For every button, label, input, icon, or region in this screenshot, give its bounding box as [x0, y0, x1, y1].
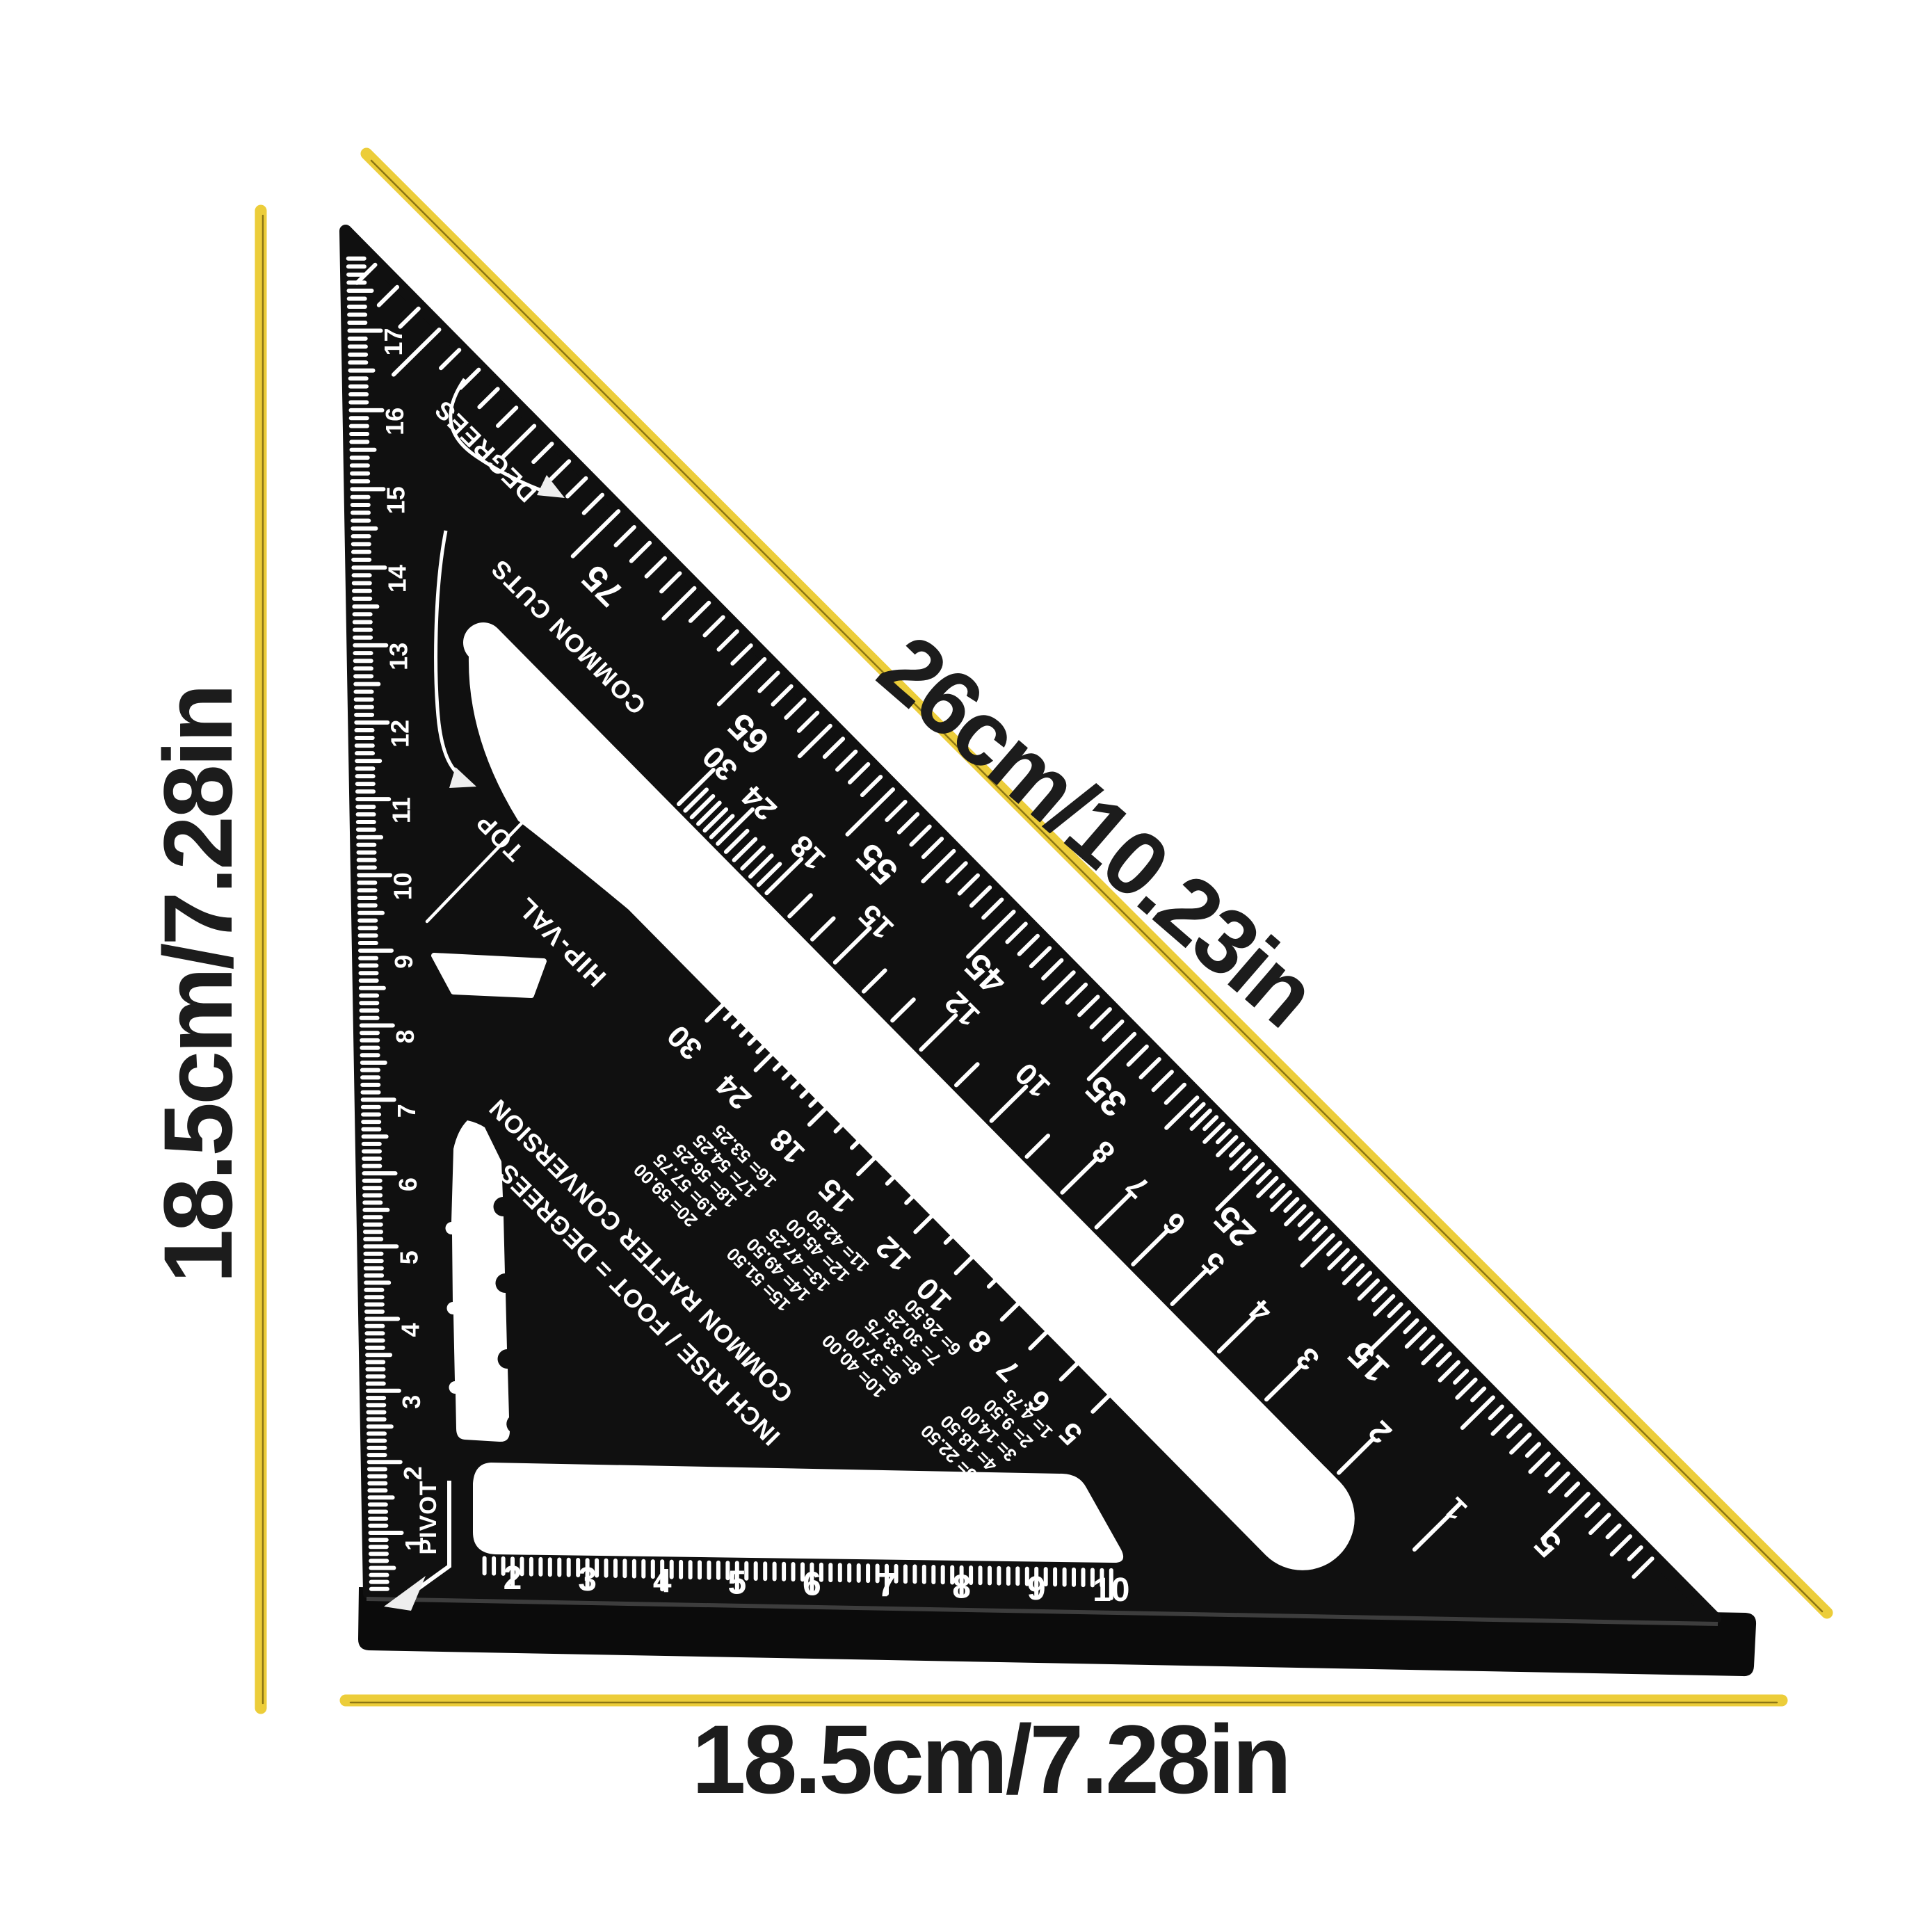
svg-text:9: 9 — [1027, 1570, 1046, 1607]
svg-text:7: 7 — [878, 1568, 896, 1604]
svg-text:4: 4 — [396, 1323, 424, 1337]
svg-text:8: 8 — [391, 1029, 419, 1043]
svg-text:5: 5 — [395, 1250, 424, 1264]
svg-text:15: 15 — [382, 486, 410, 514]
svg-text:12: 12 — [386, 720, 414, 748]
svg-text:6: 6 — [394, 1177, 422, 1191]
svg-text:10: 10 — [388, 872, 417, 900]
svg-text:3: 3 — [397, 1395, 426, 1409]
svg-text:3: 3 — [578, 1561, 597, 1598]
svg-text:13: 13 — [385, 643, 413, 670]
svg-text:18.5cm/7.28in: 18.5cm/7.28in — [692, 1705, 1289, 1814]
svg-text:17: 17 — [379, 328, 408, 355]
svg-text:10: 10 — [1093, 1572, 1129, 1609]
svg-text:PIVOT: PIVOT — [415, 1480, 442, 1554]
svg-text:6: 6 — [803, 1566, 821, 1603]
svg-text:14: 14 — [383, 565, 412, 593]
svg-text:2: 2 — [399, 1466, 427, 1480]
svg-text:11: 11 — [387, 797, 416, 823]
svg-text:5: 5 — [727, 1564, 746, 1601]
svg-text:7: 7 — [392, 1104, 421, 1118]
svg-text:16: 16 — [380, 408, 409, 435]
svg-text:2: 2 — [504, 1560, 522, 1597]
svg-text:4: 4 — [653, 1563, 672, 1600]
svg-text:18.5cm/7.28in: 18.5cm/7.28in — [143, 686, 252, 1284]
svg-text:9: 9 — [389, 955, 418, 969]
svg-text:8: 8 — [952, 1569, 971, 1606]
